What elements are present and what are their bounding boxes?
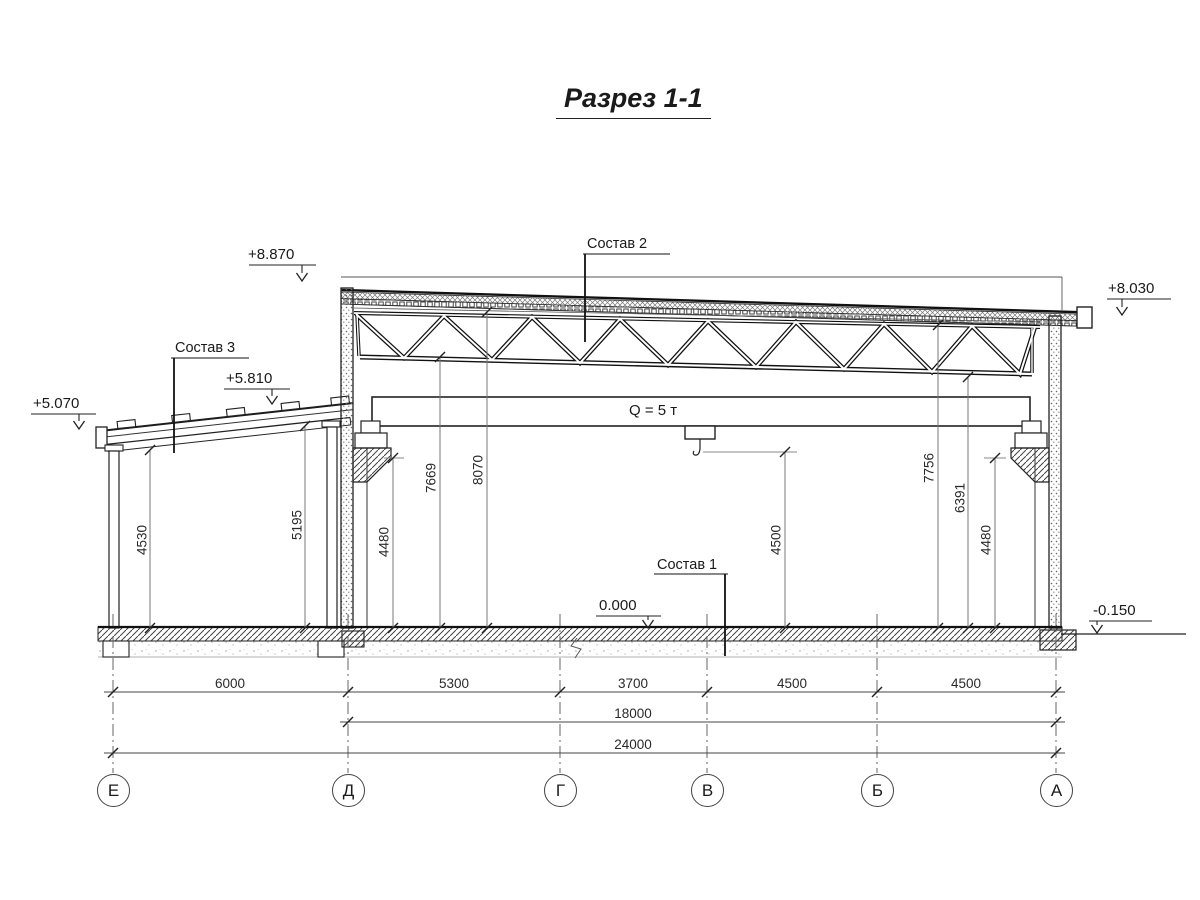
dim-span-b-a: 4500 xyxy=(926,676,1006,691)
axis-bubble-a: А xyxy=(1040,774,1073,807)
axis-bubble-e: Е xyxy=(97,774,130,807)
axis-label: В xyxy=(702,781,713,801)
roof-edge-cap xyxy=(1077,307,1092,328)
callout-roof-composition: Состав 2 xyxy=(587,236,647,252)
elevation-arrow-icon xyxy=(297,273,308,281)
dim-annex-right-height: 5195 xyxy=(290,490,305,560)
foundation-block-e xyxy=(103,641,129,657)
dim-span-d-a: 18000 xyxy=(593,706,673,721)
crane-capacity-label: Q = 5 т xyxy=(629,402,677,419)
axis-label: Б xyxy=(872,781,883,801)
elevation-annex-roof-high: +5.810 xyxy=(226,370,272,387)
annex-left-column xyxy=(109,451,119,628)
dim-roof-underside-right: 7756 xyxy=(922,433,937,503)
foundation-block-a xyxy=(1040,630,1076,650)
foundation-block-annex xyxy=(318,641,344,657)
dim-span-e-d: 6000 xyxy=(190,676,270,691)
drawing-title: Разрез 1-1 xyxy=(556,83,711,119)
axis-bubble-d: Д xyxy=(332,774,365,807)
axis-bubble-b: Б xyxy=(861,774,894,807)
dim-span-g-v: 3700 xyxy=(593,676,673,691)
dim-span-v-b: 4500 xyxy=(752,676,832,691)
floor-slab xyxy=(98,627,1186,658)
dim-annex-left-height: 4530 xyxy=(135,505,150,575)
axis-bubble-g: Г xyxy=(544,774,577,807)
dim-truss-bottom-right: 6391 xyxy=(953,463,968,533)
dim-truss-bottom-left: 7669 xyxy=(424,443,439,513)
elevation-annex-roof-low: +5.070 xyxy=(33,395,79,412)
annex-purlins xyxy=(117,396,349,429)
annex-roof xyxy=(97,396,355,453)
axis-label: Е xyxy=(108,781,119,801)
dim-span-d-g: 5300 xyxy=(414,676,494,691)
annex-right-column-cap xyxy=(322,421,340,427)
callout-annex-roof-composition: Состав 3 xyxy=(175,340,235,356)
annex-left-column-cap xyxy=(105,445,123,451)
elevation-roof-left: +8.870 xyxy=(248,246,294,263)
annex-right-column xyxy=(327,427,337,628)
crane-trolley xyxy=(685,426,715,439)
elevation-arrow-icon xyxy=(267,396,278,404)
foundation-block-d xyxy=(342,631,364,647)
elevation-ground: -0.150 xyxy=(1093,602,1136,619)
axis-label: Г xyxy=(556,781,565,801)
section-drawing-sheet: Разрез 1-1 +8.870 +8.030 +5.810 +5.070 0… xyxy=(0,0,1200,900)
dim-crane-rail-right: 4480 xyxy=(979,505,994,575)
right-corbel xyxy=(1011,421,1049,482)
axis-label: А xyxy=(1051,781,1062,801)
dimension-rows xyxy=(104,687,1065,758)
elevation-arrow-icon xyxy=(74,421,85,429)
dim-crane-rail-left: 4480 xyxy=(377,507,392,577)
crane-hook xyxy=(693,439,700,455)
elevation-arrow-icon xyxy=(1117,307,1128,315)
left-wall xyxy=(341,288,353,628)
section-linework xyxy=(0,0,1200,900)
axis-label: Д xyxy=(343,781,355,801)
dim-hook-height: 4500 xyxy=(769,505,784,575)
dim-span-e-a: 24000 xyxy=(593,737,673,752)
callout-floor-composition: Состав 1 xyxy=(657,557,717,573)
elevation-roof-right: +8.030 xyxy=(1108,280,1154,297)
left-corbel xyxy=(353,421,391,482)
axis-bubble-v: В xyxy=(691,774,724,807)
right-wall xyxy=(1049,316,1061,628)
annex-roof-beam xyxy=(108,417,351,451)
dim-roof-underside-left: 8070 xyxy=(471,435,486,505)
elevation-arrow-icon xyxy=(1092,625,1103,633)
elevation-floor: 0.000 xyxy=(599,597,637,614)
